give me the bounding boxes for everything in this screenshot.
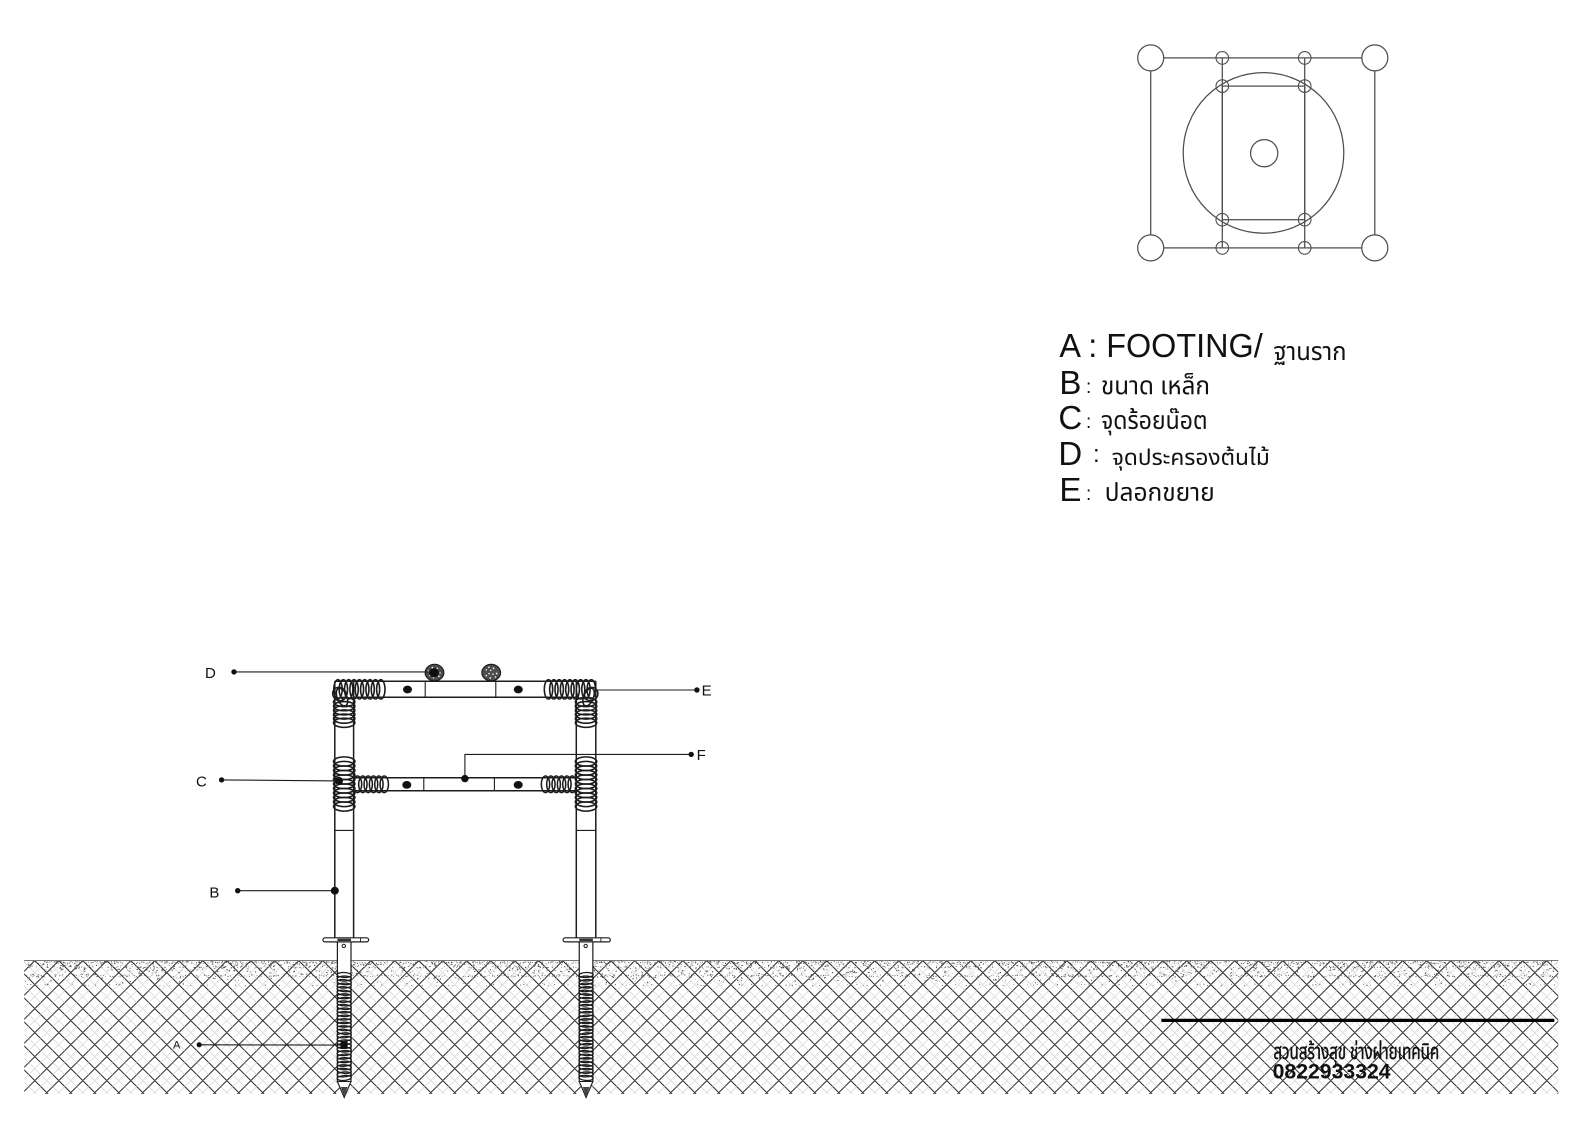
svg-text::: : bbox=[1086, 412, 1091, 433]
svg-text:C: C bbox=[196, 773, 207, 790]
svg-text:A: A bbox=[173, 1039, 181, 1051]
svg-text:B: B bbox=[209, 884, 219, 901]
svg-text:0822933324: 0822933324 bbox=[1273, 1061, 1391, 1084]
svg-text:D: D bbox=[205, 665, 216, 682]
svg-text:E: E bbox=[702, 683, 712, 700]
svg-text::: : bbox=[1086, 377, 1091, 398]
svg-text:F: F bbox=[697, 747, 706, 764]
svg-text::: : bbox=[1086, 484, 1091, 505]
svg-text::: : bbox=[1093, 441, 1100, 468]
svg-text:D: D bbox=[1058, 435, 1082, 472]
svg-text:B: B bbox=[1059, 364, 1081, 401]
svg-text:E: E bbox=[1059, 471, 1081, 508]
svg-text:C: C bbox=[1058, 399, 1082, 436]
svg-text:A : FOOTING/: A : FOOTING/ bbox=[1059, 327, 1263, 364]
